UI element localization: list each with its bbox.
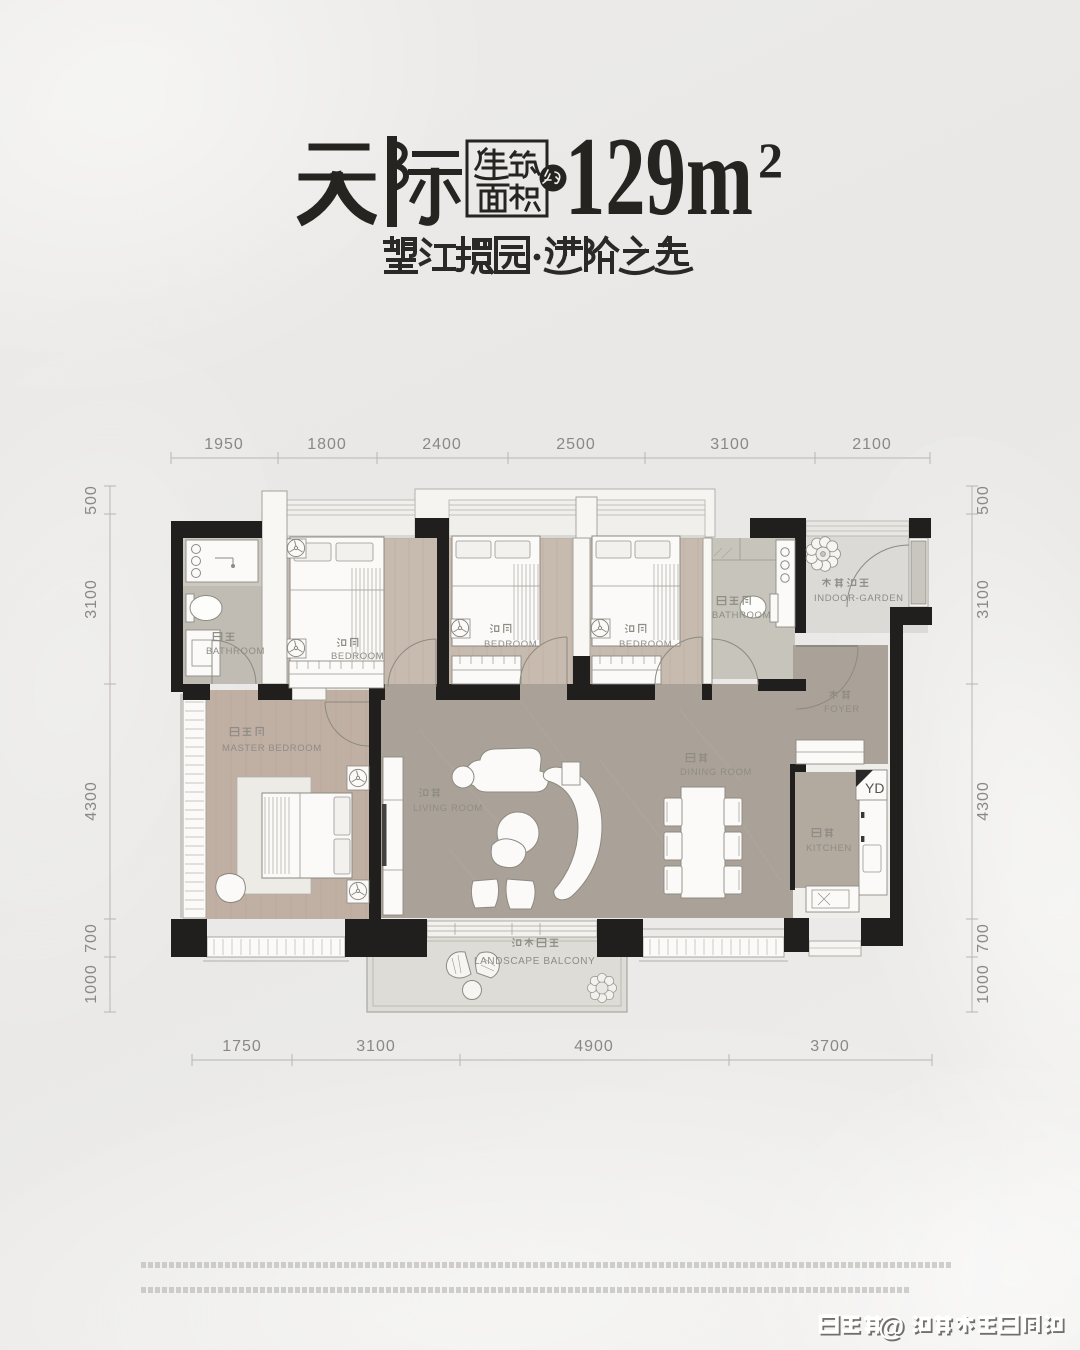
svg-text:2400: 2400 [422,436,462,453]
svg-text:1000: 1000 [975,964,992,1004]
svg-text:2500: 2500 [556,436,596,453]
svg-text:700: 700 [83,923,100,953]
svg-text:1950: 1950 [204,436,244,453]
svg-text:INDOOR-GARDEN: INDOOR-GARDEN [814,593,904,604]
svg-text:KITCHEN: KITCHEN [806,843,852,854]
svg-text:700: 700 [975,923,992,953]
svg-text:BEDROOM: BEDROOM [619,639,672,650]
svg-text:129m: 129m [565,115,753,239]
svg-text:3700: 3700 [810,1038,850,1055]
svg-text:4900: 4900 [574,1038,614,1055]
svg-text:4300: 4300 [975,781,992,821]
svg-text:MASTER BEDROOM: MASTER BEDROOM [222,743,322,754]
svg-text:1000: 1000 [83,964,100,1004]
svg-text:2100: 2100 [852,436,892,453]
svg-text:1750: 1750 [222,1038,262,1055]
svg-text:YD: YD [865,780,884,796]
svg-text:500: 500 [83,485,100,515]
svg-text:2: 2 [758,132,783,188]
svg-text:BEDROOM: BEDROOM [331,651,384,662]
svg-text:500: 500 [975,485,992,515]
svg-text:1800: 1800 [307,436,347,453]
svg-text:LANDSCAPE BALCONY: LANDSCAPE BALCONY [474,956,595,967]
svg-text:3100: 3100 [710,436,750,453]
svg-text:FOYER: FOYER [824,704,860,715]
svg-text:4300: 4300 [83,781,100,821]
svg-text:BATHROOM: BATHROOM [712,610,771,621]
svg-text:LIVING ROOM: LIVING ROOM [413,803,483,814]
svg-text:@: @ [878,1311,904,1341]
svg-text:3100: 3100 [975,579,992,619]
svg-text:3100: 3100 [83,579,100,619]
svg-text:DINING ROOM: DINING ROOM [680,767,752,778]
svg-text:BEDROOM: BEDROOM [484,639,537,650]
svg-text:3100: 3100 [356,1038,396,1055]
svg-text:BATHROOM: BATHROOM [206,646,265,657]
